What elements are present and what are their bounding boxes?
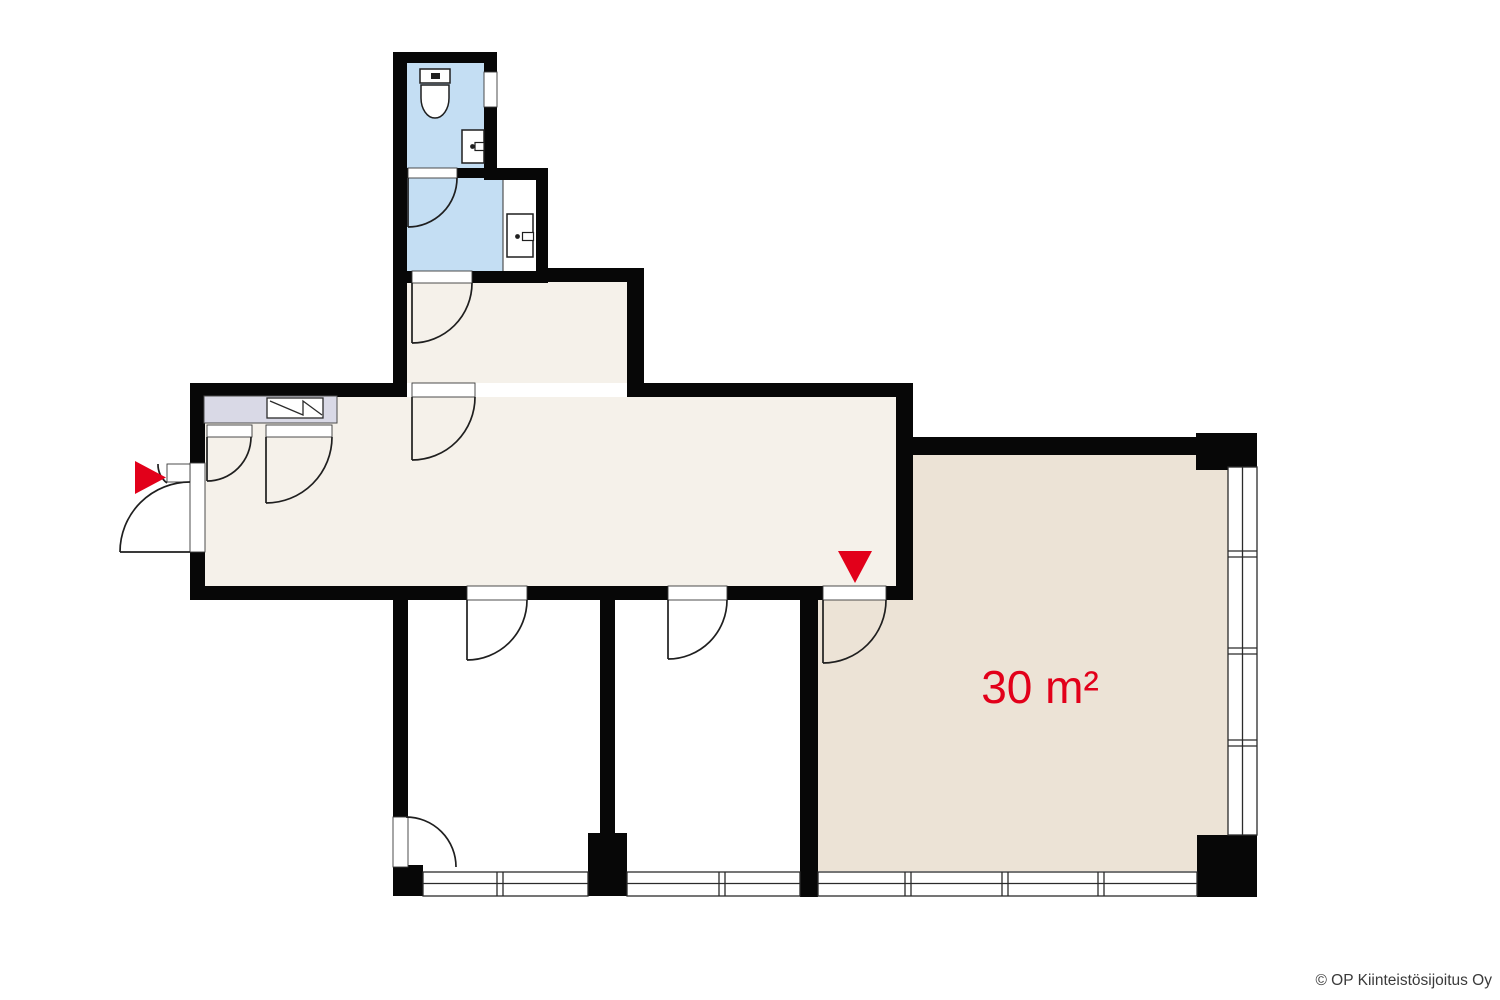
- door-opening: [467, 586, 527, 600]
- door-opening: [412, 383, 475, 397]
- zigzag-box-icon: [267, 398, 323, 418]
- floor-plan: 30 m² © OP Kiinteistösijoitus Oy: [0, 0, 1500, 1000]
- door-opening: [408, 168, 457, 178]
- wall-corner-block: [1197, 835, 1257, 897]
- washroom-sink-icon: [507, 214, 534, 257]
- wall: [484, 52, 497, 73]
- wall-corner-block: [588, 833, 627, 896]
- window-band-bottom-left: [423, 872, 588, 896]
- door-opening: [393, 817, 408, 867]
- wc-wall-window: [484, 72, 497, 107]
- wall: [800, 586, 818, 897]
- room-left-floor: [408, 600, 600, 872]
- door-opening: [190, 463, 205, 552]
- door-opening: [668, 586, 727, 600]
- wall: [190, 383, 407, 397]
- wc-sink-icon: [462, 130, 484, 163]
- closet-door-frame: [266, 425, 332, 437]
- sink-tap: [523, 233, 534, 241]
- wall: [896, 383, 913, 600]
- vestibule-floor: [407, 280, 627, 383]
- area-label: 30 m²: [981, 661, 1099, 713]
- closet-door-frame: [207, 425, 252, 437]
- wall: [393, 52, 497, 63]
- copyright-text: © OP Kiinteistösijoitus Oy: [1315, 972, 1492, 989]
- wall: [484, 106, 497, 170]
- wall: [536, 170, 548, 283]
- large-room-floor-lower: [817, 600, 1228, 871]
- wall: [600, 600, 615, 833]
- sink-tap: [475, 143, 484, 151]
- wall-corner-block: [1196, 433, 1257, 470]
- sink-drain: [470, 144, 475, 149]
- wall: [627, 268, 644, 395]
- floor-plan-drawing: 30 m² © OP Kiinteistösijoitus Oy: [0, 0, 1500, 1000]
- wall: [627, 383, 913, 397]
- door-swing-large: [120, 482, 190, 552]
- sink-drain: [515, 234, 520, 239]
- window-band-bottom-right: [818, 872, 1197, 896]
- door-opening: [823, 586, 886, 600]
- wall-corner-block: [393, 865, 423, 896]
- toilet-icon: [420, 69, 450, 118]
- wall: [393, 52, 407, 283]
- door-leaf-panel: [167, 464, 190, 482]
- large-room-floor-upper: [913, 455, 1228, 600]
- toilet-flush-button: [431, 73, 440, 79]
- wall: [896, 437, 1198, 455]
- window-band-right: [1228, 467, 1257, 835]
- wall: [393, 271, 407, 397]
- door-opening: [412, 271, 472, 283]
- toilet-bowl: [421, 85, 449, 118]
- window-band-bottom-middle: [627, 872, 800, 896]
- entrance-arrow-icon: [135, 461, 166, 494]
- room-middle-floor: [615, 600, 800, 872]
